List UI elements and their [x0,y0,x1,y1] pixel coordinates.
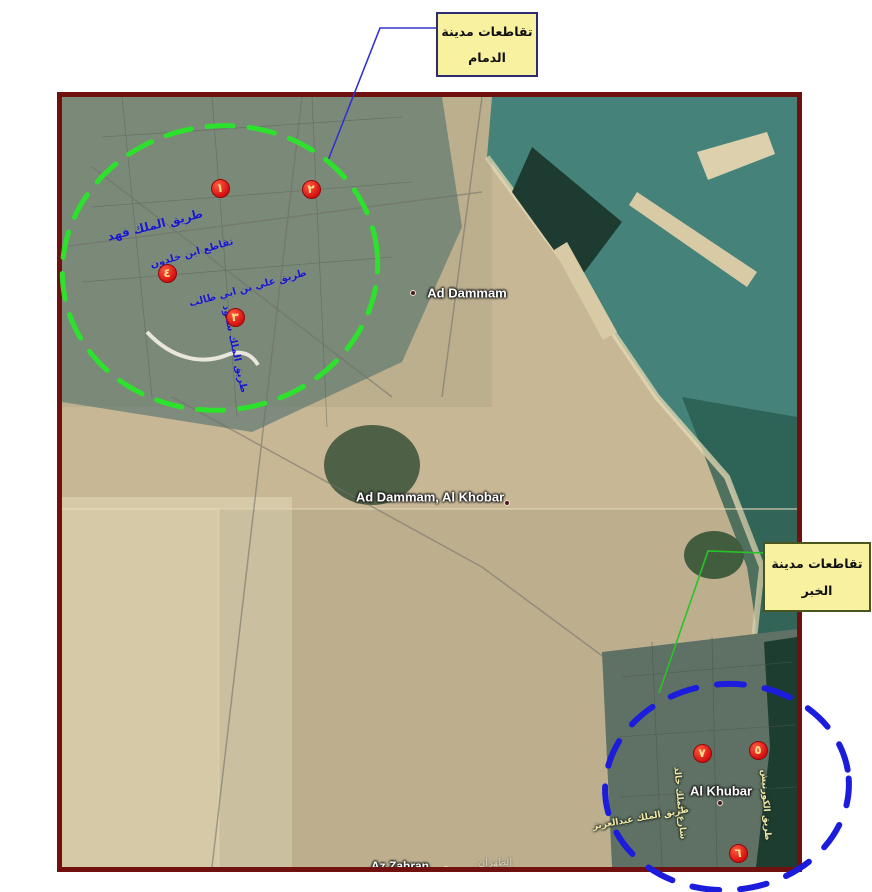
intersection-4-marker[interactable]: ٤ [158,264,177,283]
place-label-1: Ad Dammam, Al Khobar [356,490,504,505]
dammam-callout-line1: تقاطعات مدينة [441,24,532,39]
place-dot-1 [504,500,510,506]
place-dot-0 [410,290,416,296]
dammam-callout-box[interactable]: تقاطعات مدينة الدمام [436,12,538,77]
place-label-0: Ad Dammam [427,286,506,301]
khobar-callout-box[interactable]: تقاطعات مدينة الخبر [763,542,871,612]
intersection-2-marker[interactable]: ٢ [302,180,321,199]
intersection-7-marker[interactable]: ٧ [693,744,712,763]
place-dot-2 [717,800,723,806]
satellite-map[interactable]: ١٢٣٤٥٦٧طريق الملك فهدتقاطع ابن خلدونطريق… [57,92,802,872]
intersection-1-marker[interactable]: ١ [211,179,230,198]
khobar-callout-line1: تقاطعات مدينة [771,556,862,571]
khobar-callout-line2: الخبر [802,583,833,598]
intersection-6-marker[interactable]: ٦ [729,844,748,863]
intersection-3-marker[interactable]: ٣ [226,308,245,327]
intersection-5-marker[interactable]: ٥ [749,741,768,760]
place-extra-3: الظهران [478,858,512,869]
place-label-3: Az Zahran [371,859,429,872]
dammam-callout-line2: الدمام [468,50,506,65]
place-dot-3 [443,866,449,872]
place-label-2: Al Khubar [690,784,752,799]
